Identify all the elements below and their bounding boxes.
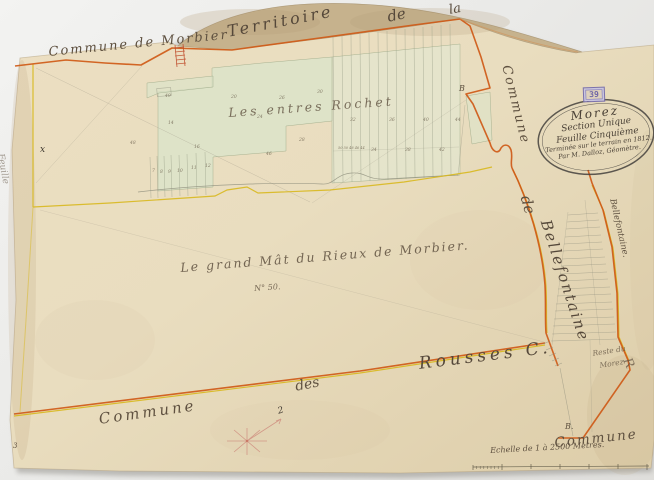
flap-stain xyxy=(350,8,510,36)
cadastral-map-scan: Commune de Morbier Territoire de la Comm… xyxy=(0,0,654,480)
archive-stamp-number: 39 xyxy=(589,90,599,99)
boundary-label-de-top: de xyxy=(386,6,407,25)
boundary-label-la-top: la xyxy=(448,2,462,17)
b-marker-1: B xyxy=(459,85,465,93)
archive-stamp: 39 xyxy=(583,87,606,103)
page-number: 3 xyxy=(13,443,17,450)
x-mark: x xyxy=(40,146,45,155)
boundary-label-de-right: de xyxy=(518,194,538,216)
b-marker-2: B. xyxy=(565,423,573,431)
